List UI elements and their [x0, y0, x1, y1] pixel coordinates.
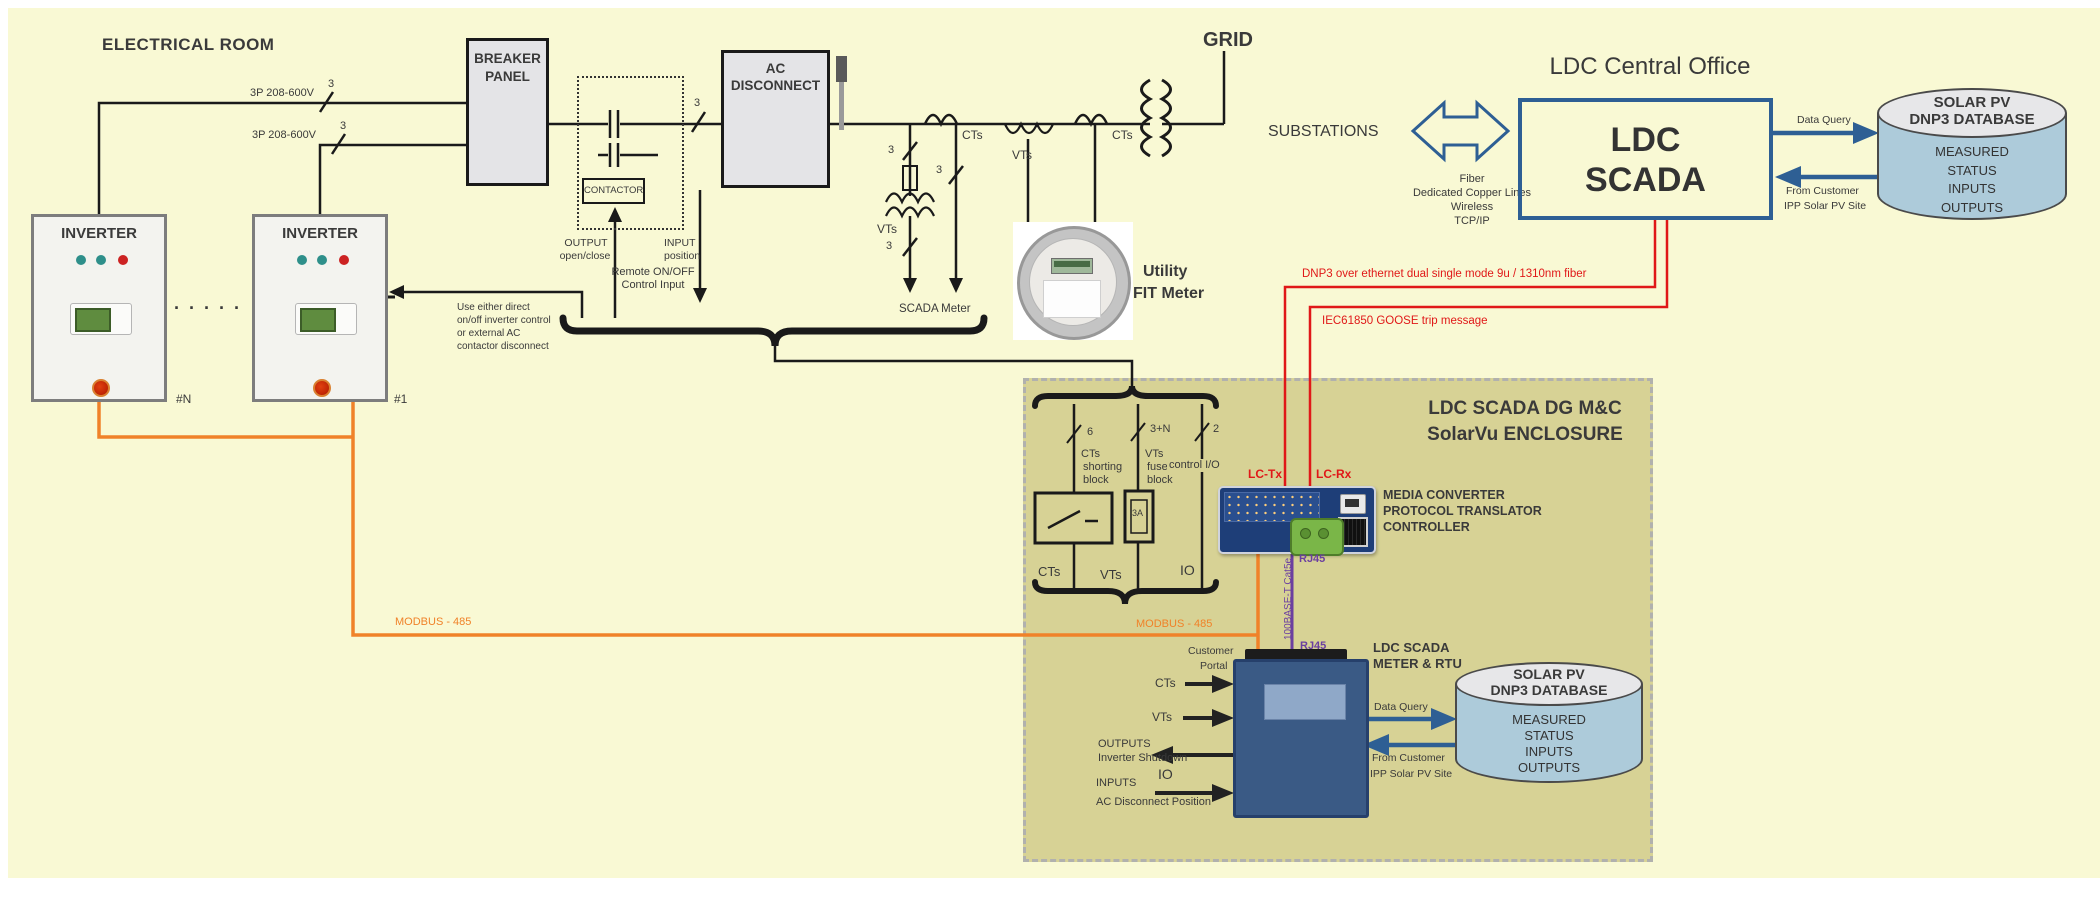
- from-customer-label-top1: From Customer: [1786, 185, 1859, 198]
- cts2-label: CTs: [1112, 128, 1133, 142]
- db-top-title1: SOLAR PV: [1877, 94, 2067, 112]
- customer-portal-label1: Customer: [1188, 645, 1234, 658]
- inverter-1-tag: #1: [394, 392, 407, 406]
- db-bottom-title2: DNP3 DATABASE: [1455, 682, 1643, 699]
- remote-onoff-label1: Remote ON/OFF: [598, 266, 708, 279]
- breaker-panel: BREAKER PANEL: [466, 38, 549, 186]
- central-office-title: LDC Central Office: [1520, 53, 1780, 82]
- rtu-cts-label: CTs: [1155, 676, 1176, 690]
- inverter-1-led-2: [317, 255, 327, 265]
- rail3-count: 2: [1213, 423, 1219, 436]
- media-converter-usb-port: [1340, 494, 1366, 514]
- ac-disconnect: AC DISCONNECT: [721, 50, 830, 188]
- cts1-label: CTs: [962, 128, 983, 142]
- rail2-label-a: VTs: [1145, 448, 1163, 461]
- rail1-count: 6: [1087, 426, 1093, 439]
- rtu-meter-image: [1233, 659, 1369, 818]
- note-line1: Use either direct: [457, 302, 530, 314]
- inverter-n-lcd: [75, 308, 111, 332]
- db-bottom-title1: SOLAR PV: [1455, 666, 1643, 683]
- data-query-label-bottom: Data Query: [1374, 701, 1428, 714]
- dnp3-fiber-label: DNP3 over ethernet dual single mode 9u /…: [1302, 268, 1586, 282]
- inverter-1: INVERTER: [252, 214, 388, 402]
- inverter-n: INVERTER: [31, 214, 167, 402]
- media-converter-label3: CONTROLLER: [1383, 520, 1470, 535]
- db-bottom-items: MEASUREDSTATUSINPUTSOUTPUTS: [1455, 712, 1643, 776]
- substations-label: SUBSTATIONS: [1268, 122, 1379, 141]
- ac-disconnect-label1: AC: [724, 61, 827, 77]
- feed2-voltage-label: 3P 208-600V: [252, 129, 316, 142]
- contactor-label: CONTACTOR: [584, 185, 643, 196]
- output-label1: OUTPUT: [560, 237, 612, 250]
- rail1-label-b: shorting: [1083, 461, 1122, 474]
- rail1-label-a: CTs: [1081, 448, 1100, 461]
- from-customer-label-bot1: From Customer: [1372, 752, 1445, 765]
- customer-portal-label2: Portal: [1200, 660, 1227, 673]
- breaker-panel-label2: PANEL: [469, 69, 546, 85]
- rtu-vts-label: VTs: [1152, 710, 1172, 724]
- rtu-title2: METER & RTU: [1373, 656, 1462, 672]
- goose-trip-label: IEC61850 GOOSE trip message: [1322, 315, 1488, 329]
- scada-meter-label: SCADA Meter: [899, 303, 971, 317]
- scada-ct-count: 3: [936, 164, 942, 177]
- substations-link-arrow: [1413, 103, 1508, 159]
- utility-meter-label1: Utility: [1143, 262, 1187, 281]
- inverter-n-tag: #N: [176, 392, 191, 406]
- scada-vt-count-bottom: 3: [886, 240, 892, 253]
- bus-conductor-count: 3: [694, 97, 700, 110]
- scada-vts-label: VTs: [877, 222, 897, 236]
- note-line4: contactor disconnect: [457, 341, 549, 353]
- inverter-1-title: INVERTER: [255, 225, 385, 243]
- inverter-1-display-panel: [295, 303, 357, 335]
- ldc-scada-label2: SCADA: [1522, 160, 1769, 201]
- ldc-scada-box: LDC SCADA: [1518, 98, 1773, 220]
- rail1-label-c: block: [1083, 474, 1109, 487]
- feed1-voltage-label: 3P 208-600V: [250, 87, 314, 100]
- modbus-label-left: MODBUS - 485: [395, 616, 471, 629]
- contactor-zone: [577, 76, 684, 230]
- diagram-canvas: LDC SCADA DG M&C SolarVu ENCLOSURE: [0, 0, 2100, 920]
- data-query-label-top: Data Query: [1797, 114, 1851, 127]
- rail3-bottom-label: IO: [1180, 562, 1195, 579]
- scada-vt-count-top: 3: [888, 144, 894, 157]
- inverter-1-lcd: [300, 308, 336, 332]
- electrical-room-title: ELECTRICAL ROOM: [102, 35, 274, 55]
- db-top-title2: DNP3 DATABASE: [1877, 111, 2067, 129]
- rtu-io-label: IO: [1158, 766, 1173, 783]
- note-line2: on/off inverter control: [457, 315, 551, 327]
- inverter-n-display-panel: [70, 303, 132, 335]
- inverter-n-title: INVERTER: [34, 225, 164, 243]
- media-converter-label1: MEDIA CONVERTER: [1383, 488, 1505, 503]
- input-label2: position: [664, 250, 700, 263]
- db-top-items: MEASUREDSTATUSINPUTSOUTPUTS: [1877, 143, 2067, 217]
- inverter-1-stop-button: [313, 379, 331, 397]
- from-customer-label-top2: IPP Solar PV Site: [1784, 200, 1866, 213]
- utility-meter-label2: FIT Meter: [1133, 284, 1204, 303]
- inverter-n-led-3: [118, 255, 128, 265]
- cat5e-cable-label: 100BASE-T Cat5e: [1283, 558, 1295, 640]
- contactor-box: CONTACTOR: [582, 178, 645, 204]
- input-label1: INPUT: [664, 237, 696, 250]
- breaker-panel-label1: BREAKER: [469, 51, 546, 67]
- rtu-inputs-label1: INPUTS: [1096, 777, 1136, 790]
- rail2-label-c: block: [1147, 474, 1173, 487]
- rail1-bottom-label: CTs: [1038, 564, 1060, 580]
- inverter-n-stop-button: [92, 379, 110, 397]
- rtu-meter-screen: [1264, 684, 1346, 720]
- lc-tx-label: LC-Tx: [1248, 467, 1282, 481]
- inverter-n-led-2: [96, 255, 106, 265]
- ldc-scada-label1: LDC: [1522, 120, 1769, 161]
- lc-rx-label: LC-Rx: [1316, 467, 1351, 481]
- rtu-title1: LDC SCADA: [1373, 640, 1450, 656]
- modbus-label-right: MODBUS - 485: [1136, 618, 1212, 631]
- media-converter-label2: PROTOCOL TRANSLATOR: [1383, 504, 1542, 519]
- feed2-conductor-count: 3: [340, 120, 346, 133]
- inverter-1-led-3: [339, 255, 349, 265]
- inverter-1-led-1: [297, 255, 307, 265]
- rtu-outputs-label2: Inverter Shutdown: [1098, 752, 1187, 765]
- rj45-label-top: RJ45: [1299, 553, 1325, 566]
- media-converter-terminal-block: [1290, 518, 1344, 556]
- rail2-bottom-label: VTs: [1100, 567, 1122, 583]
- fuse-rating: 3A: [1132, 508, 1143, 519]
- rtu-inputs-label2: AC Disconnect Position: [1096, 796, 1211, 809]
- fit-vts-label: VTs: [1012, 148, 1032, 162]
- ac-disconnect-label2: DISCONNECT: [724, 78, 827, 94]
- rtu-outputs-label1: OUTPUTS: [1098, 738, 1151, 751]
- note-line3: or external AC: [457, 328, 520, 340]
- grid-label: GRID: [1203, 28, 1253, 52]
- inverter-n-led-1: [76, 255, 86, 265]
- from-customer-label-bot2: IPP Solar PV Site: [1370, 768, 1452, 781]
- rail2-count: 3+N: [1150, 423, 1171, 436]
- inverter-ellipsis: · · · · ·: [174, 298, 242, 320]
- remote-onoff-label2: Control Input: [598, 279, 708, 292]
- media-converter-image: [1218, 486, 1376, 554]
- output-label2: open/close: [555, 250, 615, 263]
- rail3-label: control I/O: [1167, 459, 1222, 472]
- feed1-conductor-count: 3: [328, 78, 334, 91]
